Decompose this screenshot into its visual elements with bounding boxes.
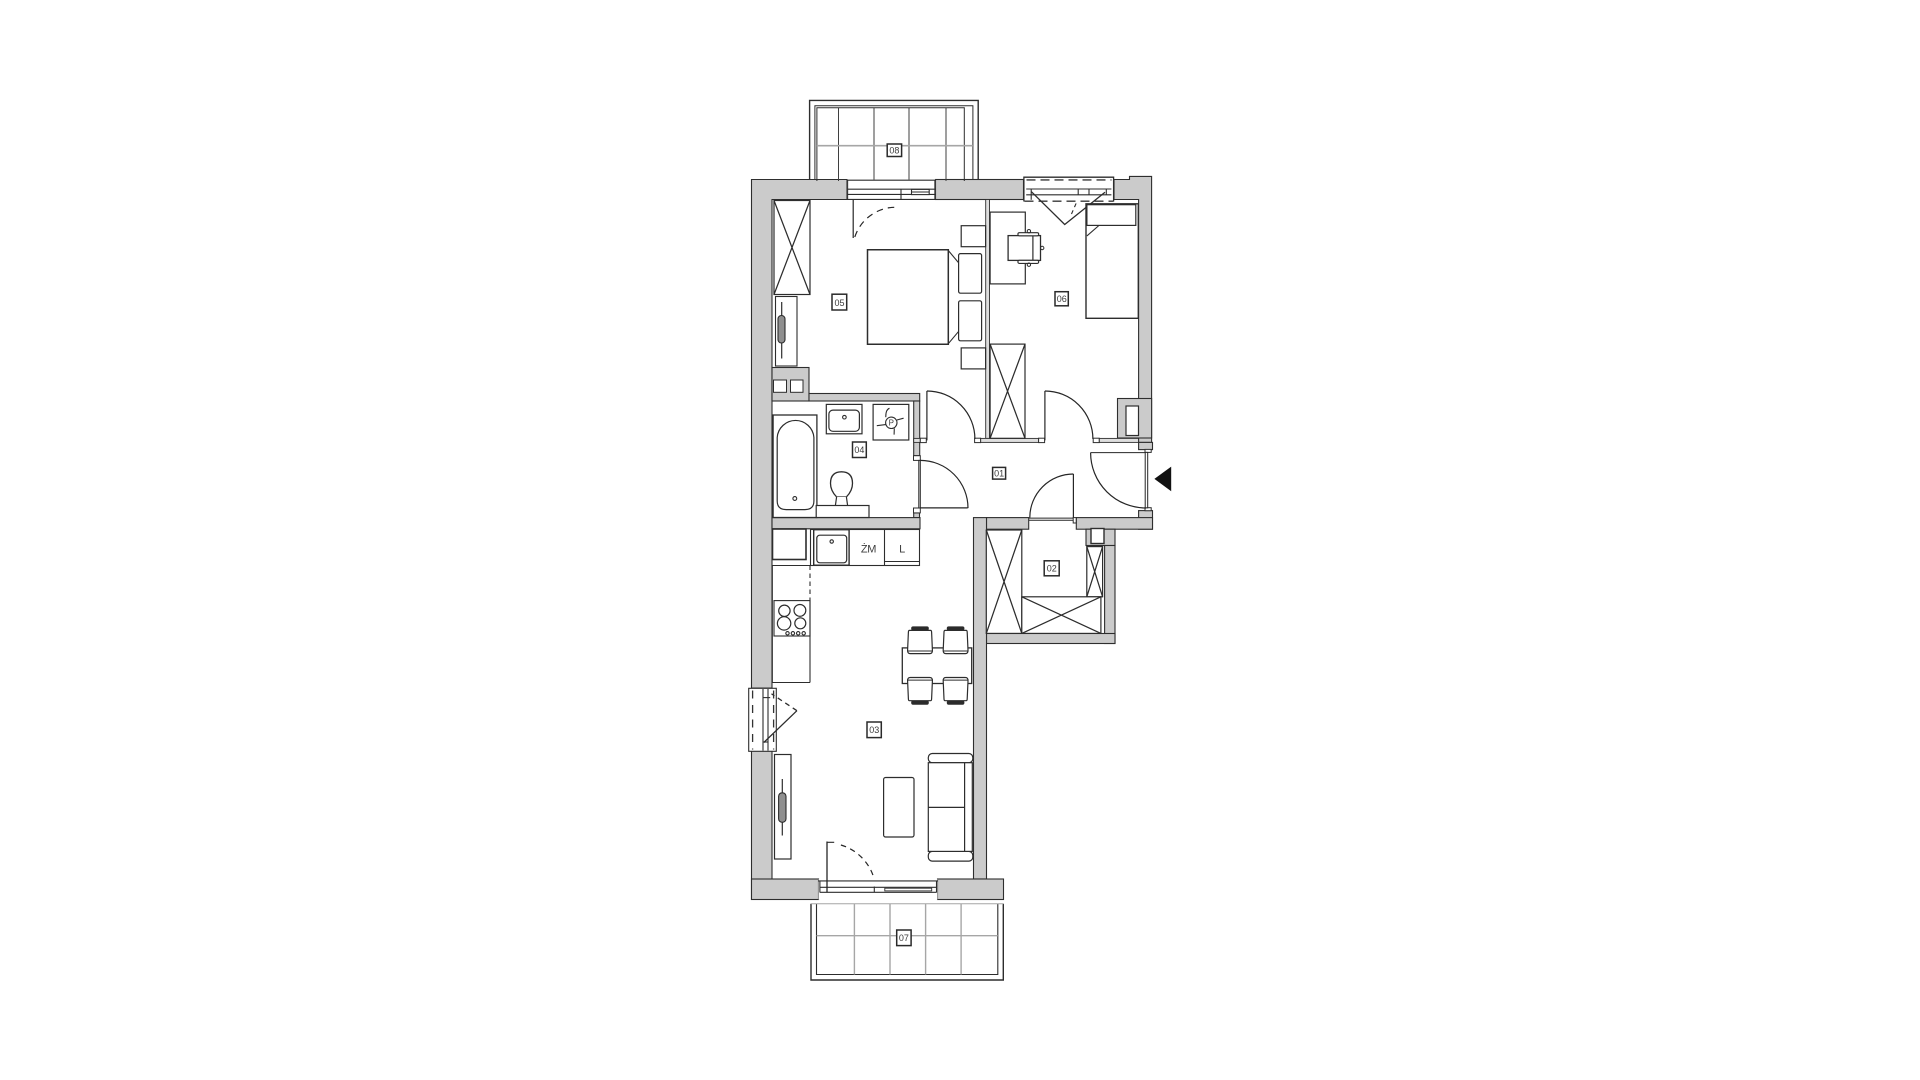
svg-text:01: 01: [994, 468, 1004, 478]
svg-text:07: 07: [899, 933, 909, 943]
svg-text:L: L: [899, 544, 905, 556]
svg-text:05: 05: [834, 298, 844, 308]
svg-text:02: 02: [1047, 564, 1057, 574]
svg-text:04: 04: [854, 445, 864, 455]
svg-text:08: 08: [889, 145, 899, 155]
svg-text:P: P: [889, 419, 894, 428]
svg-text:03: 03: [869, 725, 879, 735]
svg-text:ŻM: ŻM: [861, 543, 876, 556]
svg-text:06: 06: [1057, 294, 1067, 304]
